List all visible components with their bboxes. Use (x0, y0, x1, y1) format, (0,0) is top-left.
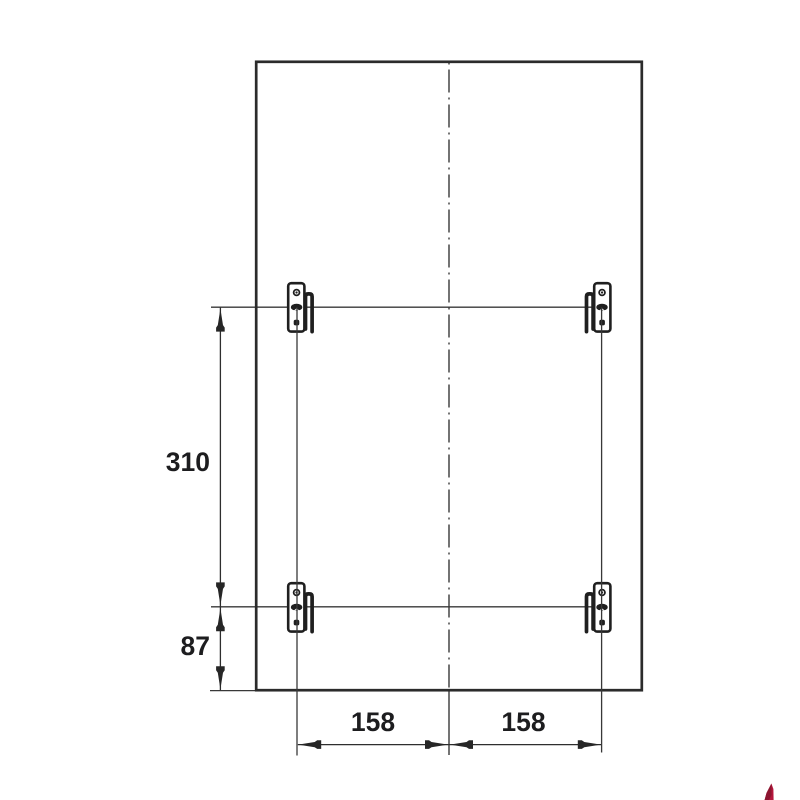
svg-text:158: 158 (501, 707, 545, 737)
svg-text:310: 310 (166, 447, 210, 477)
svg-text:158: 158 (351, 707, 395, 737)
svg-text:87: 87 (181, 631, 210, 661)
